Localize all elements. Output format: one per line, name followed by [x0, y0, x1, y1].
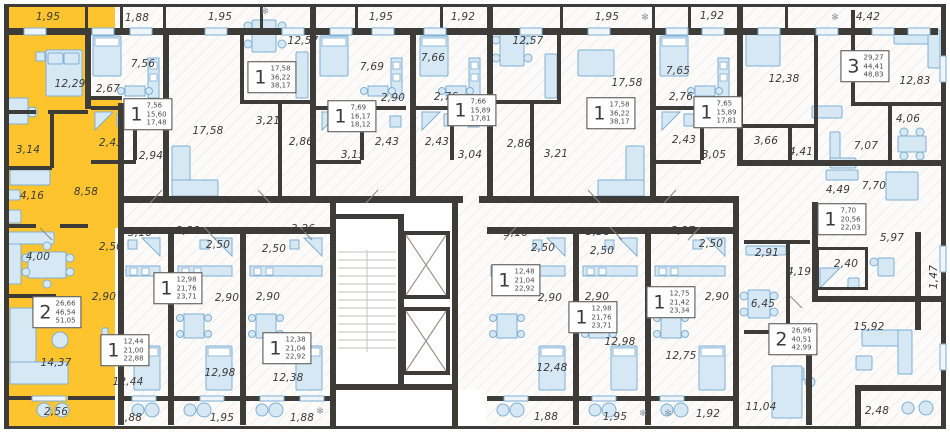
apartment-tag-apt-10[interactable]: 226,9640,5142,99 — [768, 323, 817, 355]
apartment-rooms-count: 1 — [269, 338, 281, 358]
apartment-tag-apt-09[interactable]: 17,7020,5622,03 — [817, 203, 866, 235]
apartment-area-value: 12,75 — [670, 289, 690, 298]
apartment-rooms-count: 1 — [824, 209, 836, 229]
apartment-area-value: 17,48 — [147, 118, 167, 127]
apartment-rooms-count: 2 — [775, 329, 787, 349]
apartment-area-value: 22,03 — [841, 223, 861, 232]
apartment-tag-apt-02[interactable]: 17,5615,6017,48 — [123, 98, 172, 130]
apartment-area-value: 38,17 — [610, 117, 630, 126]
apartment-area-value: 21,04 — [515, 276, 535, 285]
apartment-area-value: 18,12 — [351, 120, 371, 129]
apartment-rooms-count: 1 — [254, 67, 266, 87]
apartment-area-value: 7,56 — [147, 101, 167, 110]
apartment-rooms-count: 1 — [334, 106, 346, 126]
apartment-area-value: 7,70 — [841, 206, 861, 215]
apartment-area-value: 17,58 — [271, 64, 291, 73]
floor-plan-drawing — [0, 0, 950, 433]
apartment-tag-apt-15[interactable]: 112,9821,7623,71 — [568, 301, 617, 333]
apartment-tag-apt-16[interactable]: 112,7521,4223,34 — [646, 286, 695, 318]
apartment-area-value: 7,65 — [717, 99, 737, 108]
apartment-area-value: 22,92 — [515, 284, 535, 293]
apartment-rooms-count: 1 — [160, 278, 172, 298]
apartment-area-value: 46,54 — [56, 308, 76, 317]
apartment-area-value: 12,98 — [592, 304, 612, 313]
apartment-rooms-count: 1 — [593, 103, 605, 123]
apartment-area-value: 7,69 — [351, 103, 371, 112]
apartment-rooms-count: 1 — [498, 270, 510, 290]
apartment-area-value: 48,83 — [864, 70, 884, 79]
apartment-area-value: 38,17 — [271, 81, 291, 90]
apartment-area-value: 36,22 — [610, 109, 630, 118]
apartment-rooms-count: 1 — [130, 104, 142, 124]
apartment-area-value: 23,71 — [592, 321, 612, 330]
apartment-area-value: 15,89 — [471, 106, 491, 115]
apartment-area-value: 15,89 — [717, 108, 737, 117]
apartment-tag-apt-11[interactable]: 112,4421,0022,88 — [100, 334, 149, 366]
apartment-tag-apt-12[interactable]: 112,9821,7623,71 — [153, 272, 202, 304]
apartment-area-value: 12,44 — [124, 337, 144, 346]
apartment-area-value: 17,58 — [610, 100, 630, 109]
apartment-rooms-count: 1 — [454, 100, 466, 120]
floor-plan: 1,9512,293,144,168,584,0014,372,56226,66… — [0, 0, 950, 433]
apartment-area-value: 23,34 — [670, 306, 690, 315]
apartment-area-value: 22,88 — [124, 354, 144, 363]
apartment-rooms-count: 1 — [575, 307, 587, 327]
apartment-area-value: 36,22 — [271, 73, 291, 82]
apartment-area-value: 44,41 — [864, 62, 884, 71]
apartment-tag-apt-07[interactable]: 17,6515,8917,81 — [693, 96, 742, 128]
apartment-area-value: 42,99 — [792, 343, 812, 352]
apartment-rooms-count: 1 — [700, 102, 712, 122]
apartment-rooms-count: 1 — [107, 340, 119, 360]
apartment-tag-apt-06[interactable]: 117,5836,2238,17 — [586, 97, 635, 129]
apartment-area-value: 16,17 — [351, 112, 371, 121]
apartment-tag-apt-01[interactable]: 226,6646,5451,05 — [32, 296, 81, 328]
apartment-area-value: 21,00 — [124, 346, 144, 355]
apartment-area-value: 21,76 — [177, 284, 197, 293]
apartment-area-value: 17,81 — [717, 116, 737, 125]
apartment-tag-apt-04[interactable]: 17,6916,1718,12 — [327, 100, 376, 132]
apartment-area-value: 12,38 — [286, 335, 306, 344]
apartment-area-value: 20,56 — [841, 215, 861, 224]
apartment-tag-apt-13[interactable]: 112,3821,0422,92 — [262, 332, 311, 364]
apartment-area-value: 26,96 — [792, 326, 812, 335]
apartment-rooms-count: 2 — [39, 302, 51, 322]
apartment-area-value: 15,60 — [147, 110, 167, 119]
apartment-rooms-count: 1 — [653, 292, 665, 312]
apartment-rooms-count: 3 — [847, 56, 859, 76]
apartment-area-value: 26,66 — [56, 299, 76, 308]
apartment-area-value: 21,42 — [670, 298, 690, 307]
apartment-area-value: 23,71 — [177, 292, 197, 301]
apartment-area-value: 22,92 — [286, 352, 306, 361]
apartment-area-value: 12,48 — [515, 267, 535, 276]
apartment-area-value: 51,05 — [56, 316, 76, 325]
apartment-tag-apt-03[interactable]: 117,5836,2238,17 — [247, 61, 296, 93]
apartment-area-value: 40,51 — [792, 335, 812, 344]
apartment-tag-apt-05[interactable]: 17,6615,8917,81 — [447, 94, 496, 126]
apartment-area-value: 12,98 — [177, 275, 197, 284]
apartment-tag-apt-14[interactable]: 112,4821,0422,92 — [491, 264, 540, 296]
apartment-area-value: 21,04 — [286, 344, 306, 353]
apartment-area-value: 21,76 — [592, 313, 612, 322]
apartment-area-value: 17,81 — [471, 114, 491, 123]
apartment-area-value: 7,66 — [471, 97, 491, 106]
apartment-area-value: 29,27 — [864, 53, 884, 62]
apartment-tag-apt-08[interactable]: 329,2744,4148,83 — [840, 50, 889, 82]
